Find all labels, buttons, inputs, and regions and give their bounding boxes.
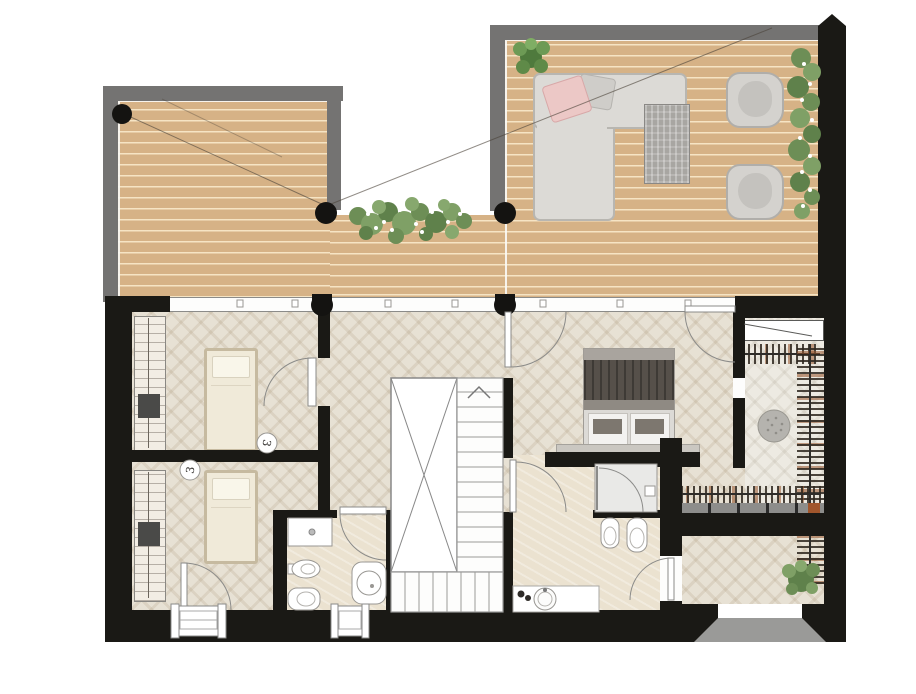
- master-bed-blanket: [584, 360, 674, 400]
- master-pillow-left-core: [593, 419, 622, 434]
- lounge-chair-1-cushion: [738, 81, 772, 117]
- wall-balcony-top: [660, 513, 824, 536]
- wall-balcony-bottom: [660, 604, 846, 642]
- bathroom1-floor: [287, 516, 386, 612]
- wall-bathroom2-right-upper: [660, 438, 682, 557]
- terrace-deck-left: [118, 100, 330, 300]
- bed1-blanket-seam: [211, 385, 251, 386]
- wall-stairs-right-lower: [503, 512, 513, 612]
- wall-closet-top: [735, 296, 827, 318]
- master-pillow-left: [588, 413, 628, 445]
- terrace-deck-middle: [330, 215, 505, 300]
- single-bed-bedroom1: [204, 348, 258, 452]
- terrace-coffee-table: [644, 104, 690, 184]
- wall-bottom-exterior: [105, 610, 705, 642]
- wardrobe1-drawer-unit: [138, 394, 160, 418]
- wardrobe2-drawer-unit: [138, 522, 160, 546]
- terrace-glass-wall: [170, 297, 735, 312]
- wall-bedroom1-right-lower: [318, 406, 330, 450]
- wall-stairs-right-upper: [503, 378, 513, 458]
- wardrobe1-rail: [148, 318, 149, 448]
- closet-rail-side-bar: [809, 344, 811, 584]
- parapet-top-right: [490, 25, 820, 40]
- closet-rail-bottom-bar: [663, 493, 821, 495]
- parapet-left: [103, 86, 118, 302]
- wall-closet-divider-upper: [733, 312, 745, 378]
- wall-shower-bottom: [593, 510, 660, 518]
- master-double-bed: [583, 348, 675, 450]
- master-bed-fold: [584, 400, 674, 410]
- wall-bedroom1-right-upper: [318, 310, 330, 358]
- wall-bedroom-divider: [132, 450, 330, 462]
- master-bed-headboard: [584, 349, 674, 360]
- lounge-chair-2: [726, 164, 784, 220]
- wall-left-exterior: [105, 296, 132, 642]
- closet-entry-opening: [733, 378, 745, 398]
- wall-bathroom1-right: [386, 510, 394, 612]
- closet-counter: [742, 320, 824, 341]
- wall-right-exterior: [824, 296, 846, 642]
- lounge-chair-1: [726, 72, 784, 128]
- lounge-chair-2-cushion: [738, 173, 772, 209]
- single-bed-bedroom2: [204, 470, 258, 564]
- bed2-blanket-seam: [211, 507, 251, 508]
- parapet-notch-left: [327, 98, 341, 210]
- floor-plan-canvas: 3 3: [0, 0, 916, 694]
- balcony-door-opening: [660, 556, 682, 601]
- bed2-pillow: [212, 478, 250, 500]
- wall-top-left-stub: [105, 296, 170, 312]
- bathroom2-floor: [513, 455, 660, 612]
- wall-terrace-right: [818, 14, 846, 298]
- bed1-pillow: [212, 356, 250, 378]
- parapet-notch-right: [490, 25, 505, 211]
- wardrobe-bedroom1: [134, 316, 166, 452]
- parapet-top-left: [103, 86, 343, 101]
- wall-closet-divider-lower: [733, 398, 745, 468]
- wall-bathroom1-left: [273, 510, 287, 612]
- master-pillow-right-core: [635, 419, 664, 434]
